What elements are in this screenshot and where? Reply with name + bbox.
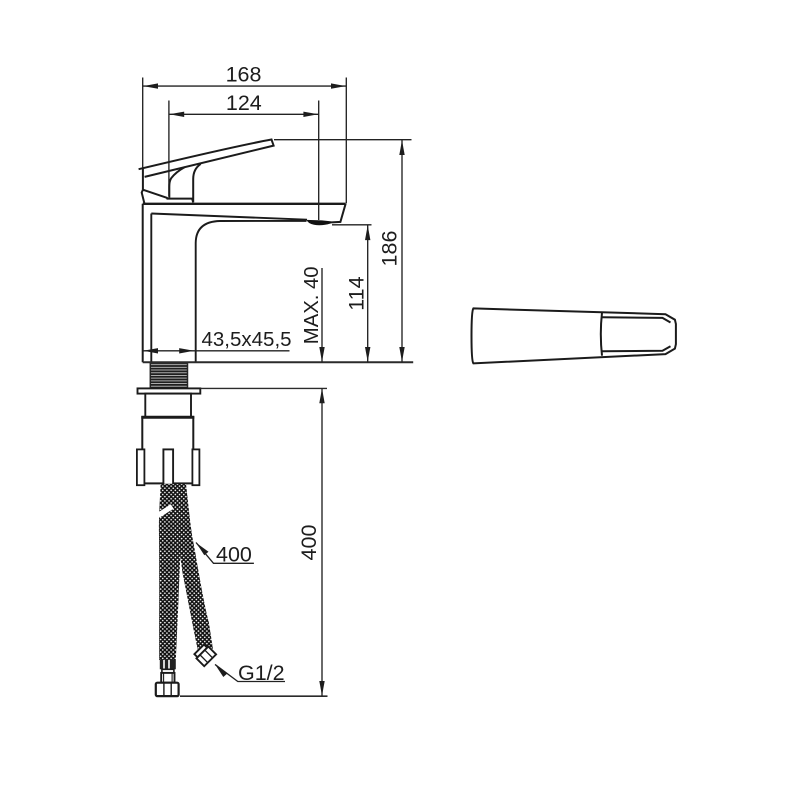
svg-text:MAX. 40: MAX. 40: [301, 266, 323, 344]
svg-text:G1/2: G1/2: [238, 661, 285, 685]
svg-text:43,5x45,5: 43,5x45,5: [202, 328, 292, 351]
svg-text:124: 124: [226, 91, 262, 115]
svg-text:400: 400: [216, 543, 252, 567]
svg-text:114: 114: [344, 276, 368, 310]
svg-text:186: 186: [378, 231, 402, 267]
svg-text:168: 168: [226, 63, 262, 87]
svg-text:400: 400: [297, 525, 321, 561]
